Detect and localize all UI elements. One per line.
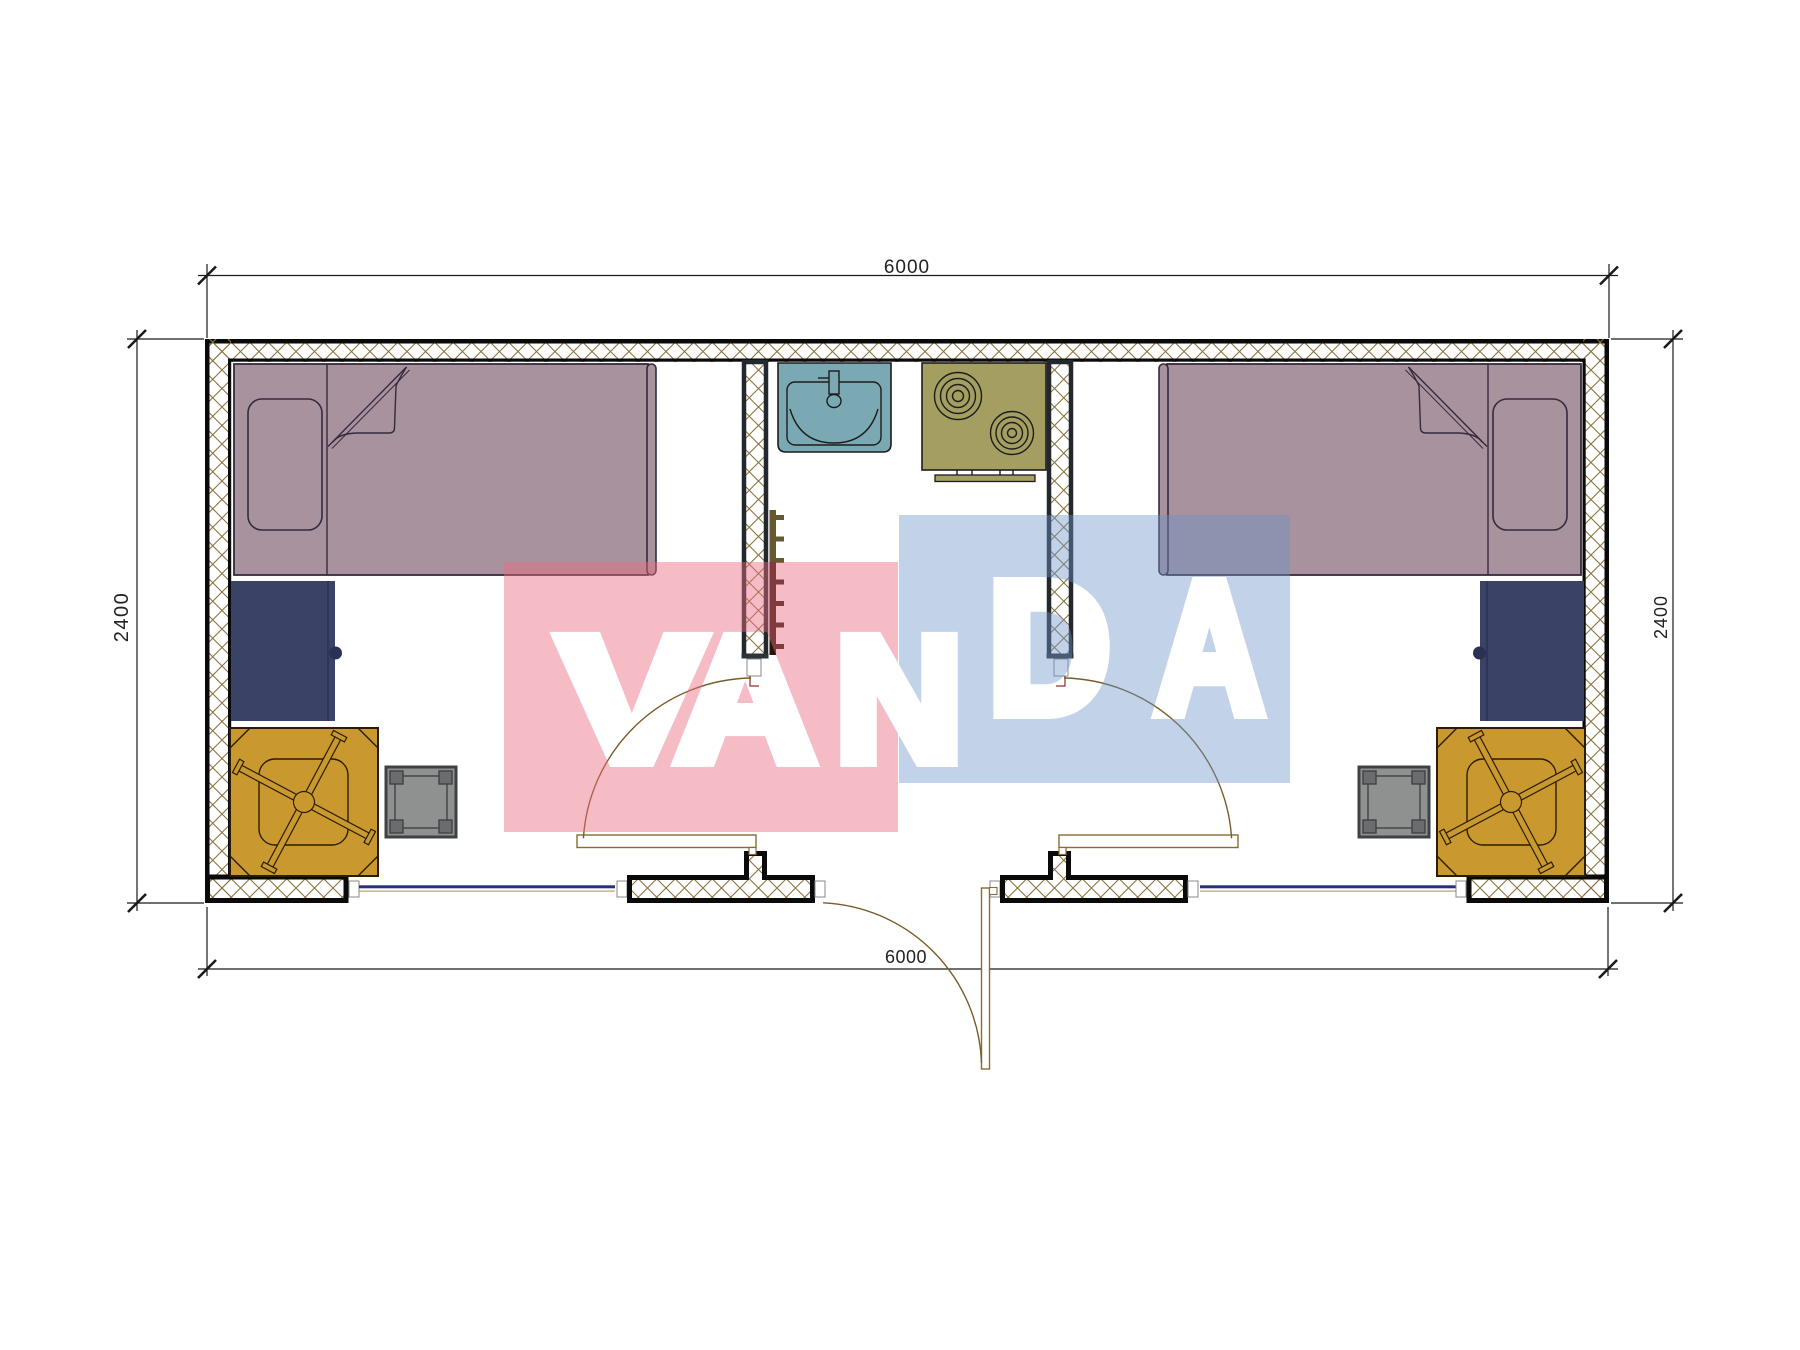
- svg-text:2400: 2400: [111, 592, 133, 643]
- svg-text:2400: 2400: [1651, 595, 1671, 639]
- svg-text:6000: 6000: [884, 257, 930, 278]
- svg-text:6000: 6000: [885, 947, 927, 967]
